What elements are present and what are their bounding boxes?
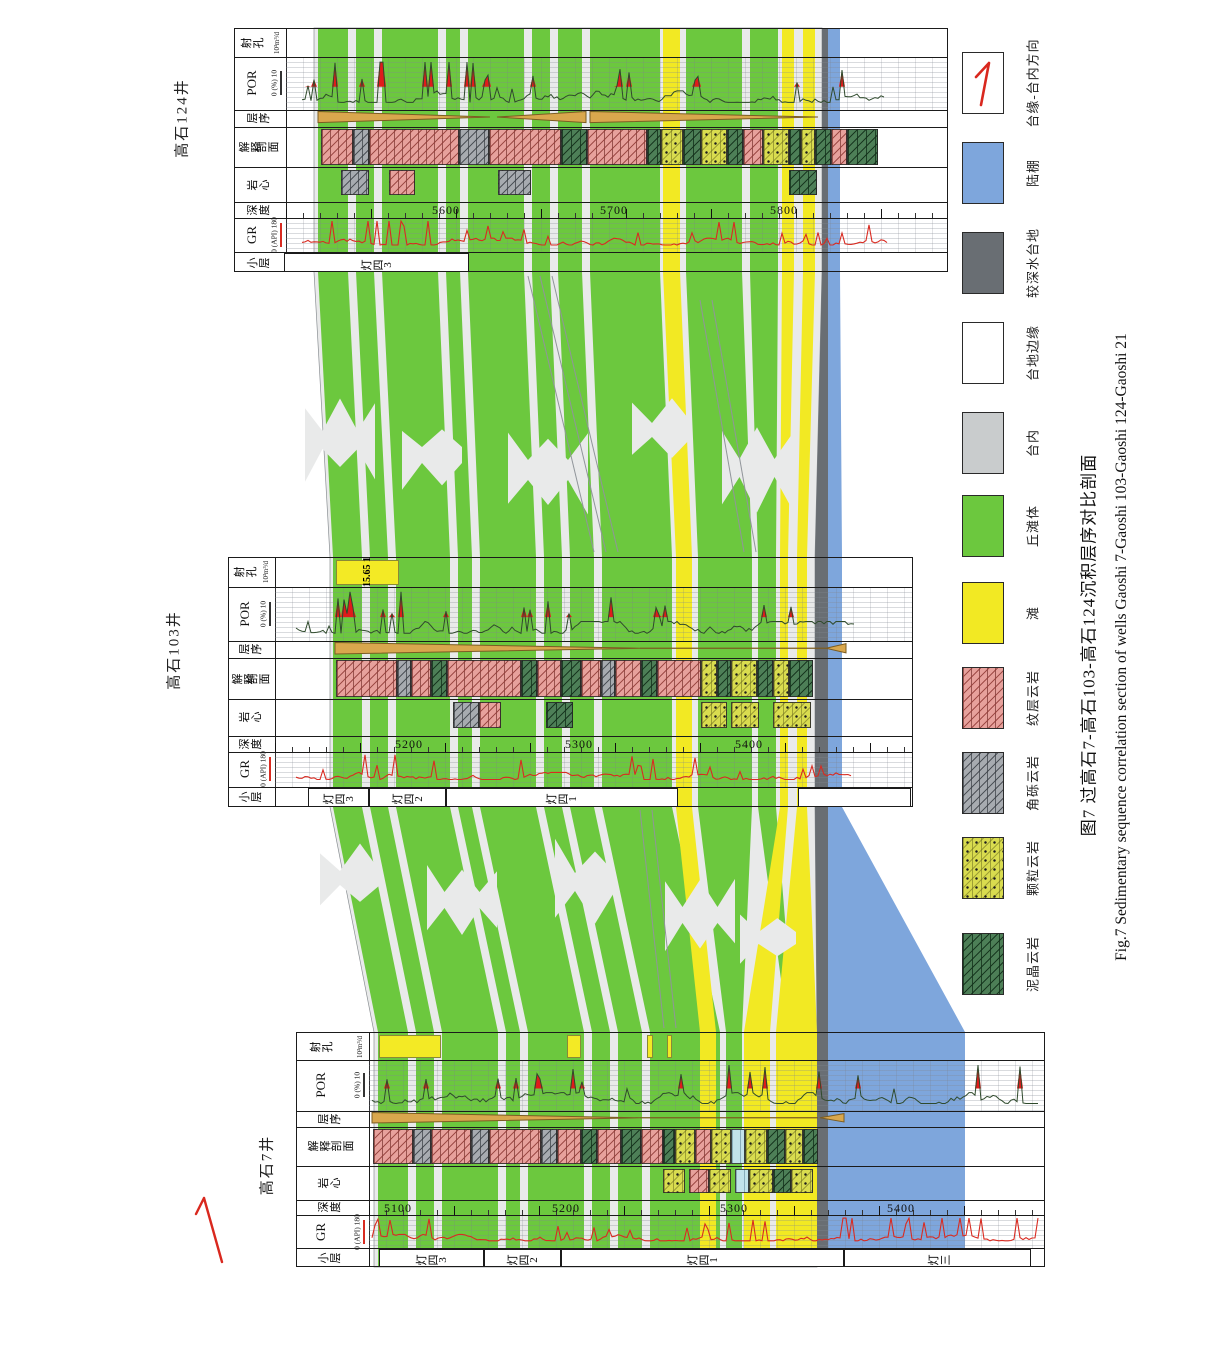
legend-label: 纹层云岩 [1023, 670, 1042, 726]
legend-item [962, 933, 1004, 995]
legend-item [962, 52, 1004, 114]
well-name-gs124: 高石124井 [171, 78, 192, 158]
legend-swatch-dgreen [962, 933, 1004, 995]
legend-label: 台内 [1023, 429, 1042, 457]
legend-swatch-solid-white [962, 322, 1004, 384]
legend-swatch-solid-ltgray [962, 412, 1004, 474]
legend-item [962, 495, 1004, 557]
legend-swatch-solid-yellow [962, 582, 1004, 644]
legend-label: 较深水台地 [1023, 228, 1042, 298]
legend-label: 角砾云岩 [1023, 755, 1042, 811]
legend-item [962, 582, 1004, 644]
legend-swatch-pink [962, 667, 1004, 729]
legend-label: 丘滩体 [1023, 505, 1042, 547]
legend-swatch-solid-dkgray [962, 232, 1004, 294]
direction-glyph [963, 53, 1005, 115]
legend-swatch-grain [962, 837, 1004, 899]
well-name-gs7: 高石7井 [256, 1135, 277, 1196]
legend-item [962, 412, 1004, 474]
legend-label: 泥晶云岩 [1023, 936, 1042, 992]
legend-item [962, 232, 1004, 294]
legend-swatch-direction [962, 52, 1004, 114]
caption-english: Fig.7 Sedimentary sequence correlation s… [1113, 333, 1131, 961]
legend-item [962, 142, 1004, 204]
legend-item [962, 837, 1004, 899]
text-layer: 图7 过高石7-高石103-高石124沉积层序对比剖面 Fig.7 Sedime… [0, 0, 1209, 1349]
legend-label: 陆棚 [1023, 159, 1042, 187]
legend-label: 台缘-台内方向 [1023, 38, 1042, 127]
direction-arrow-icon [976, 63, 989, 105]
legend-item [962, 752, 1004, 814]
legend-label: 颗粒云岩 [1023, 840, 1042, 896]
caption-chinese: 图7 过高石7-高石103-高石124沉积层序对比剖面 [1075, 454, 1100, 837]
legend-label: 滩 [1023, 606, 1042, 620]
legend-swatch-solid-blue [962, 142, 1004, 204]
legend-swatch-gray [962, 752, 1004, 814]
legend-label: 台地边缘 [1023, 325, 1042, 381]
legend-item [962, 322, 1004, 384]
figure-page: 射孔10³m³/dPOR0 (%) 10层序解释剖面岩心深度GR0 (API) … [0, 0, 1209, 1349]
well-name-gs103: 高石103井 [163, 610, 184, 690]
legend-item [962, 667, 1004, 729]
legend-swatch-solid-green [962, 495, 1004, 557]
